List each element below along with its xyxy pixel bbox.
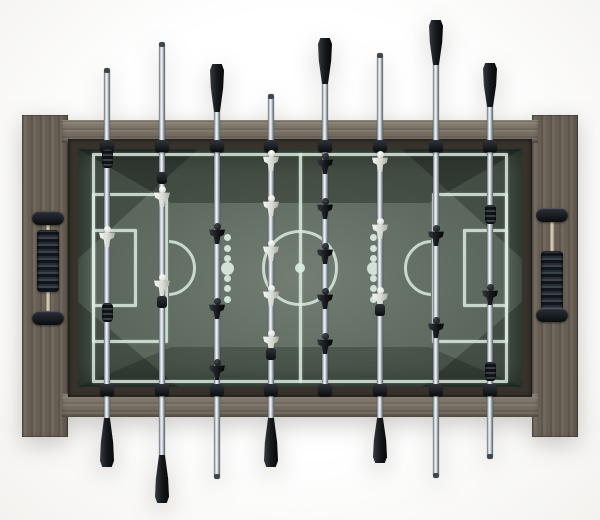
player-head xyxy=(487,284,494,291)
bumper-rod8 xyxy=(485,205,496,224)
foosball-table xyxy=(0,0,600,520)
bumper-rod8 xyxy=(485,362,496,381)
player-black-rod8-2 xyxy=(482,284,498,305)
rod-8-tip-bottom xyxy=(487,454,493,459)
rod-8-shaft xyxy=(487,104,493,459)
rods-layer xyxy=(0,0,600,520)
foosball-table-photo xyxy=(0,0,600,520)
rod-8-bearing-bottom xyxy=(483,384,497,396)
player-torso xyxy=(482,289,498,305)
rod-8-bearing-top xyxy=(483,140,497,152)
rod-8-handle-top xyxy=(483,63,497,107)
rod-8-black-goalie xyxy=(0,0,600,520)
